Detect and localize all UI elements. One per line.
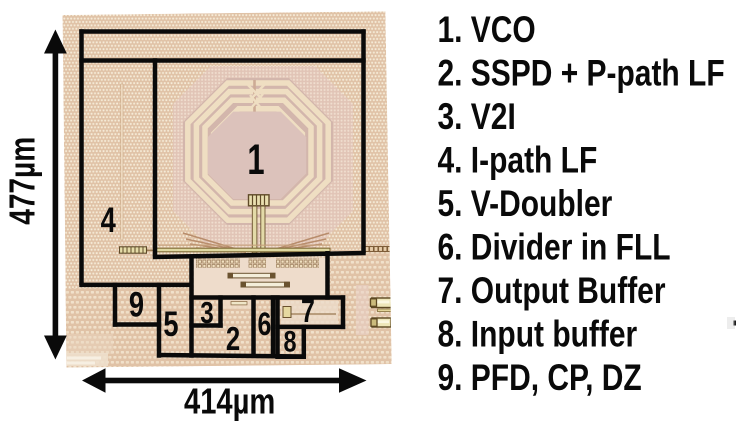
svg-text:3: 3 [200,295,213,330]
svg-text:8. Input buffer: 8. Input buffer [438,315,638,356]
svg-text:477µm: 477µm [2,137,42,225]
svg-text:6: 6 [258,307,272,343]
svg-text:8: 8 [283,325,296,358]
svg-text:4: 4 [101,201,117,240]
svg-text:1: 1 [247,135,264,183]
svg-text:9: 9 [129,285,144,324]
svg-text:2: 2 [226,321,240,358]
svg-text:7: 7 [301,294,315,330]
svg-text:4. I-path LF: 4. I-path LF [438,141,598,182]
svg-text:5. V-Doubler: 5. V-Doubler [438,184,613,225]
svg-text:1. VCO: 1. VCO [438,10,536,51]
svg-text:414µm: 414µm [184,381,275,422]
svg-text:5: 5 [163,305,178,344]
svg-text:7. Output Buffer: 7. Output Buffer [438,271,666,312]
svg-text:9. PFD, CP, DZ: 9. PFD, CP, DZ [438,358,642,399]
svg-text:3. V2I: 3. V2I [438,97,516,138]
svg-text:6. Divider in FLL: 6. Divider in FLL [438,228,671,269]
svg-text:2. SSPD + P-path LF: 2. SSPD + P-path LF [438,54,725,95]
